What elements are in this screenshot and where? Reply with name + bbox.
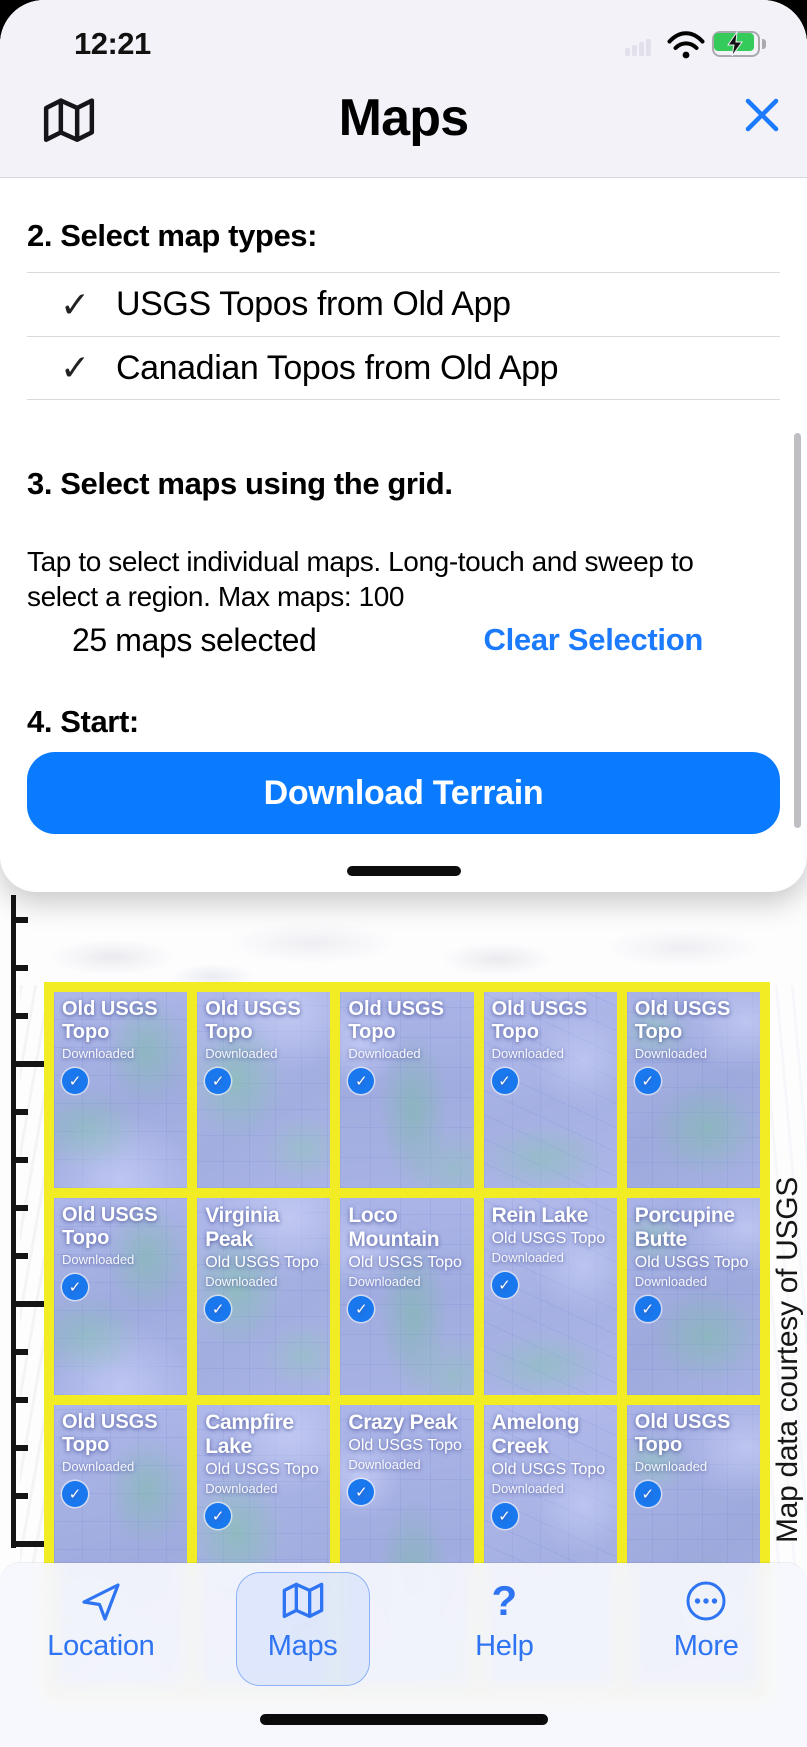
cellular-icon bbox=[625, 36, 651, 56]
map-tile[interactable]: Old USGS TopoDownloaded✓ bbox=[197, 992, 330, 1188]
tile-info: Old USGS TopoDownloaded✓ bbox=[62, 1411, 183, 1507]
location-icon bbox=[79, 1577, 123, 1625]
tile-name: Campfire Lake bbox=[205, 1411, 326, 1459]
tile-type: Old USGS Topo bbox=[492, 1461, 613, 1479]
ruler-tick bbox=[11, 1157, 28, 1163]
tile-type: Old USGS Topo bbox=[205, 1254, 326, 1272]
map-tile[interactable]: Old USGS TopoDownloaded✓ bbox=[54, 1198, 187, 1395]
map-type-label: Canadian Topos from Old App bbox=[116, 349, 558, 388]
tile-type: Old USGS Topo bbox=[205, 998, 326, 1044]
tile-info: Old USGS TopoDownloaded✓ bbox=[205, 998, 326, 1094]
help-glyph: ? bbox=[492, 1580, 518, 1622]
tile-info: Crazy PeakOld USGS TopoDownloaded✓ bbox=[348, 1411, 469, 1505]
battery-charging-icon bbox=[712, 31, 766, 57]
tile-type: Old USGS Topo bbox=[635, 1254, 756, 1272]
tile-info: Rein LakeOld USGS TopoDownloaded✓ bbox=[492, 1204, 613, 1298]
home-indicator[interactable] bbox=[260, 1714, 548, 1725]
status-time: 12:21 bbox=[74, 26, 151, 62]
maps-icon bbox=[277, 1577, 329, 1625]
tile-type: Old USGS Topo bbox=[62, 1204, 183, 1250]
tile-status: Downloaded bbox=[492, 1250, 613, 1265]
tab-help[interactable]: ?Help bbox=[404, 1577, 606, 1663]
ruler-tick bbox=[11, 1253, 28, 1259]
tab-label: Location bbox=[47, 1630, 154, 1663]
selection-row: 25 maps selected Clear Selection bbox=[27, 622, 753, 662]
ruler-tick bbox=[11, 1445, 28, 1451]
wifi-icon bbox=[666, 30, 706, 65]
tab-label: More bbox=[674, 1630, 739, 1663]
tile-status: Downloaded bbox=[62, 1459, 183, 1474]
map-tile-rein-lake[interactable]: Rein LakeOld USGS TopoDownloaded✓ bbox=[484, 1198, 617, 1395]
map-tile[interactable]: Old USGS TopoDownloaded✓ bbox=[340, 992, 473, 1188]
map-attribution: Map data courtesy of USGS bbox=[771, 1177, 805, 1543]
checkmark-icon: ✓ bbox=[60, 284, 116, 326]
tab-more[interactable]: More bbox=[605, 1577, 807, 1663]
tile-status: Downloaded bbox=[348, 1457, 469, 1472]
close-button[interactable] bbox=[739, 92, 785, 138]
tile-status: Downloaded bbox=[62, 1046, 183, 1061]
tile-name: Virginia Peak bbox=[205, 1204, 326, 1252]
tile-info: Loco MountainOld USGS TopoDownloaded✓ bbox=[348, 1204, 469, 1322]
checkmark-icon: ✓ bbox=[60, 347, 116, 389]
tile-info: Old USGS TopoDownloaded✓ bbox=[348, 998, 469, 1094]
clear-selection-button[interactable]: Clear Selection bbox=[484, 622, 703, 658]
tile-selected-check-icon: ✓ bbox=[348, 1068, 374, 1094]
map-tile[interactable]: Old USGS TopoDownloaded✓ bbox=[484, 992, 617, 1188]
tile-name: Amelong Creek bbox=[492, 1411, 613, 1459]
tile-selected-check-icon: ✓ bbox=[492, 1068, 518, 1094]
ruler-tick bbox=[11, 1397, 28, 1403]
tile-selected-check-icon: ✓ bbox=[348, 1296, 374, 1322]
tile-info: Old USGS TopoDownloaded✓ bbox=[62, 998, 183, 1094]
tile-info: Old USGS TopoDownloaded✓ bbox=[492, 998, 613, 1094]
tile-name: Crazy Peak bbox=[348, 1411, 469, 1435]
step4-heading: 4. Start: bbox=[27, 704, 139, 740]
tile-info: Porcupine ButteOld USGS TopoDownloaded✓ bbox=[635, 1204, 756, 1322]
map-type-list: ✓USGS Topos from Old App✓Canadian Topos … bbox=[27, 272, 780, 400]
sheet-drag-handle[interactable] bbox=[347, 866, 461, 876]
tile-info: Campfire LakeOld USGS TopoDownloaded✓ bbox=[205, 1411, 326, 1529]
map-tile-porcupine-butte[interactable]: Porcupine ButteOld USGS TopoDownloaded✓ bbox=[627, 1198, 760, 1395]
faded-map-strip bbox=[20, 890, 790, 986]
tile-selected-check-icon: ✓ bbox=[348, 1479, 374, 1505]
tile-type: Old USGS Topo bbox=[492, 998, 613, 1044]
tile-type: Old USGS Topo bbox=[635, 998, 756, 1044]
tab-location[interactable]: Location bbox=[0, 1577, 202, 1663]
map-tile-loco-mountain[interactable]: Loco MountainOld USGS TopoDownloaded✓ bbox=[340, 1198, 473, 1395]
tile-type: Old USGS Topo bbox=[492, 1230, 613, 1248]
map-tile-virginia-peak[interactable]: Virginia PeakOld USGS TopoDownloaded✓ bbox=[197, 1198, 330, 1395]
map-type-option[interactable]: ✓Canadian Topos from Old App bbox=[27, 336, 780, 400]
tile-type: Old USGS Topo bbox=[205, 1461, 326, 1479]
ruler-tick bbox=[11, 1013, 28, 1019]
tab-maps[interactable]: Maps bbox=[202, 1577, 404, 1663]
maps-sheet: 12:21 bbox=[0, 0, 807, 892]
tile-selected-check-icon: ✓ bbox=[62, 1274, 88, 1300]
tile-name: Porcupine Butte bbox=[635, 1204, 756, 1252]
tile-status: Downloaded bbox=[348, 1274, 469, 1289]
app-screen: Old USGS TopoDownloaded✓Old USGS TopoDow… bbox=[0, 0, 807, 1747]
tile-type: Old USGS Topo bbox=[348, 1254, 469, 1272]
tile-name: Rein Lake bbox=[492, 1204, 613, 1228]
tile-type: Old USGS Topo bbox=[62, 998, 183, 1044]
tile-selected-check-icon: ✓ bbox=[635, 1296, 661, 1322]
map-tile[interactable]: Old USGS TopoDownloaded✓ bbox=[54, 992, 187, 1188]
tile-info: Old USGS TopoDownloaded✓ bbox=[62, 1204, 183, 1300]
ruler-tick bbox=[11, 917, 28, 923]
tile-selected-check-icon: ✓ bbox=[492, 1503, 518, 1529]
page-title: Maps bbox=[0, 88, 807, 148]
tab-label: Help bbox=[475, 1630, 533, 1663]
tile-status: Downloaded bbox=[205, 1274, 326, 1289]
tile-status: Downloaded bbox=[205, 1481, 326, 1496]
tile-info: Virginia PeakOld USGS TopoDownloaded✓ bbox=[205, 1204, 326, 1322]
map-tile[interactable]: Old USGS TopoDownloaded✓ bbox=[627, 992, 760, 1188]
step3-description: Tap to select individual maps. Long-touc… bbox=[27, 544, 753, 614]
tile-status: Downloaded bbox=[492, 1481, 613, 1496]
tile-type: Old USGS Topo bbox=[62, 1411, 183, 1457]
ruler-tick bbox=[11, 1349, 28, 1355]
selected-count: 25 maps selected bbox=[72, 622, 316, 659]
tile-type: Old USGS Topo bbox=[348, 998, 469, 1044]
tile-info: Old USGS TopoDownloaded✓ bbox=[635, 1411, 756, 1507]
close-icon bbox=[740, 93, 784, 137]
tile-selected-check-icon: ✓ bbox=[62, 1481, 88, 1507]
tile-selected-check-icon: ✓ bbox=[492, 1272, 518, 1298]
sheet-header-area: 12:21 bbox=[0, 0, 807, 178]
ruler-tick bbox=[11, 965, 28, 971]
tile-info: Amelong CreekOld USGS TopoDownloaded✓ bbox=[492, 1411, 613, 1529]
ruler-tick bbox=[11, 1109, 28, 1115]
tile-selected-check-icon: ✓ bbox=[205, 1068, 231, 1094]
map-type-option[interactable]: ✓USGS Topos from Old App bbox=[27, 272, 780, 336]
tile-status: Downloaded bbox=[62, 1252, 183, 1267]
tile-selected-check-icon: ✓ bbox=[62, 1068, 88, 1094]
tile-type: Old USGS Topo bbox=[635, 1411, 756, 1457]
more-icon bbox=[684, 1577, 728, 1625]
scrollbar[interactable] bbox=[794, 433, 801, 828]
tab-label: Maps bbox=[268, 1630, 338, 1663]
tile-status: Downloaded bbox=[635, 1274, 756, 1289]
tile-name: Loco Mountain bbox=[348, 1204, 469, 1252]
tile-selected-check-icon: ✓ bbox=[635, 1481, 661, 1507]
tile-status: Downloaded bbox=[492, 1046, 613, 1061]
tile-info: Old USGS TopoDownloaded✓ bbox=[635, 998, 756, 1094]
tile-selected-check-icon: ✓ bbox=[205, 1503, 231, 1529]
tile-type: Old USGS Topo bbox=[348, 1437, 469, 1455]
tile-selected-check-icon: ✓ bbox=[205, 1296, 231, 1322]
tile-status: Downloaded bbox=[635, 1459, 756, 1474]
help-icon: ? bbox=[492, 1577, 518, 1625]
ruler-tick bbox=[11, 1205, 28, 1211]
tile-status: Downloaded bbox=[635, 1046, 756, 1061]
step3-heading: 3. Select maps using the grid. bbox=[27, 466, 453, 502]
map-type-label: USGS Topos from Old App bbox=[116, 285, 511, 324]
step2-heading: 2. Select map types: bbox=[27, 218, 317, 254]
tile-selected-check-icon: ✓ bbox=[635, 1068, 661, 1094]
download-terrain-button[interactable]: Download Terrain bbox=[27, 752, 780, 834]
tile-status: Downloaded bbox=[348, 1046, 469, 1061]
tile-status: Downloaded bbox=[205, 1046, 326, 1061]
ruler-tick bbox=[11, 1493, 28, 1499]
